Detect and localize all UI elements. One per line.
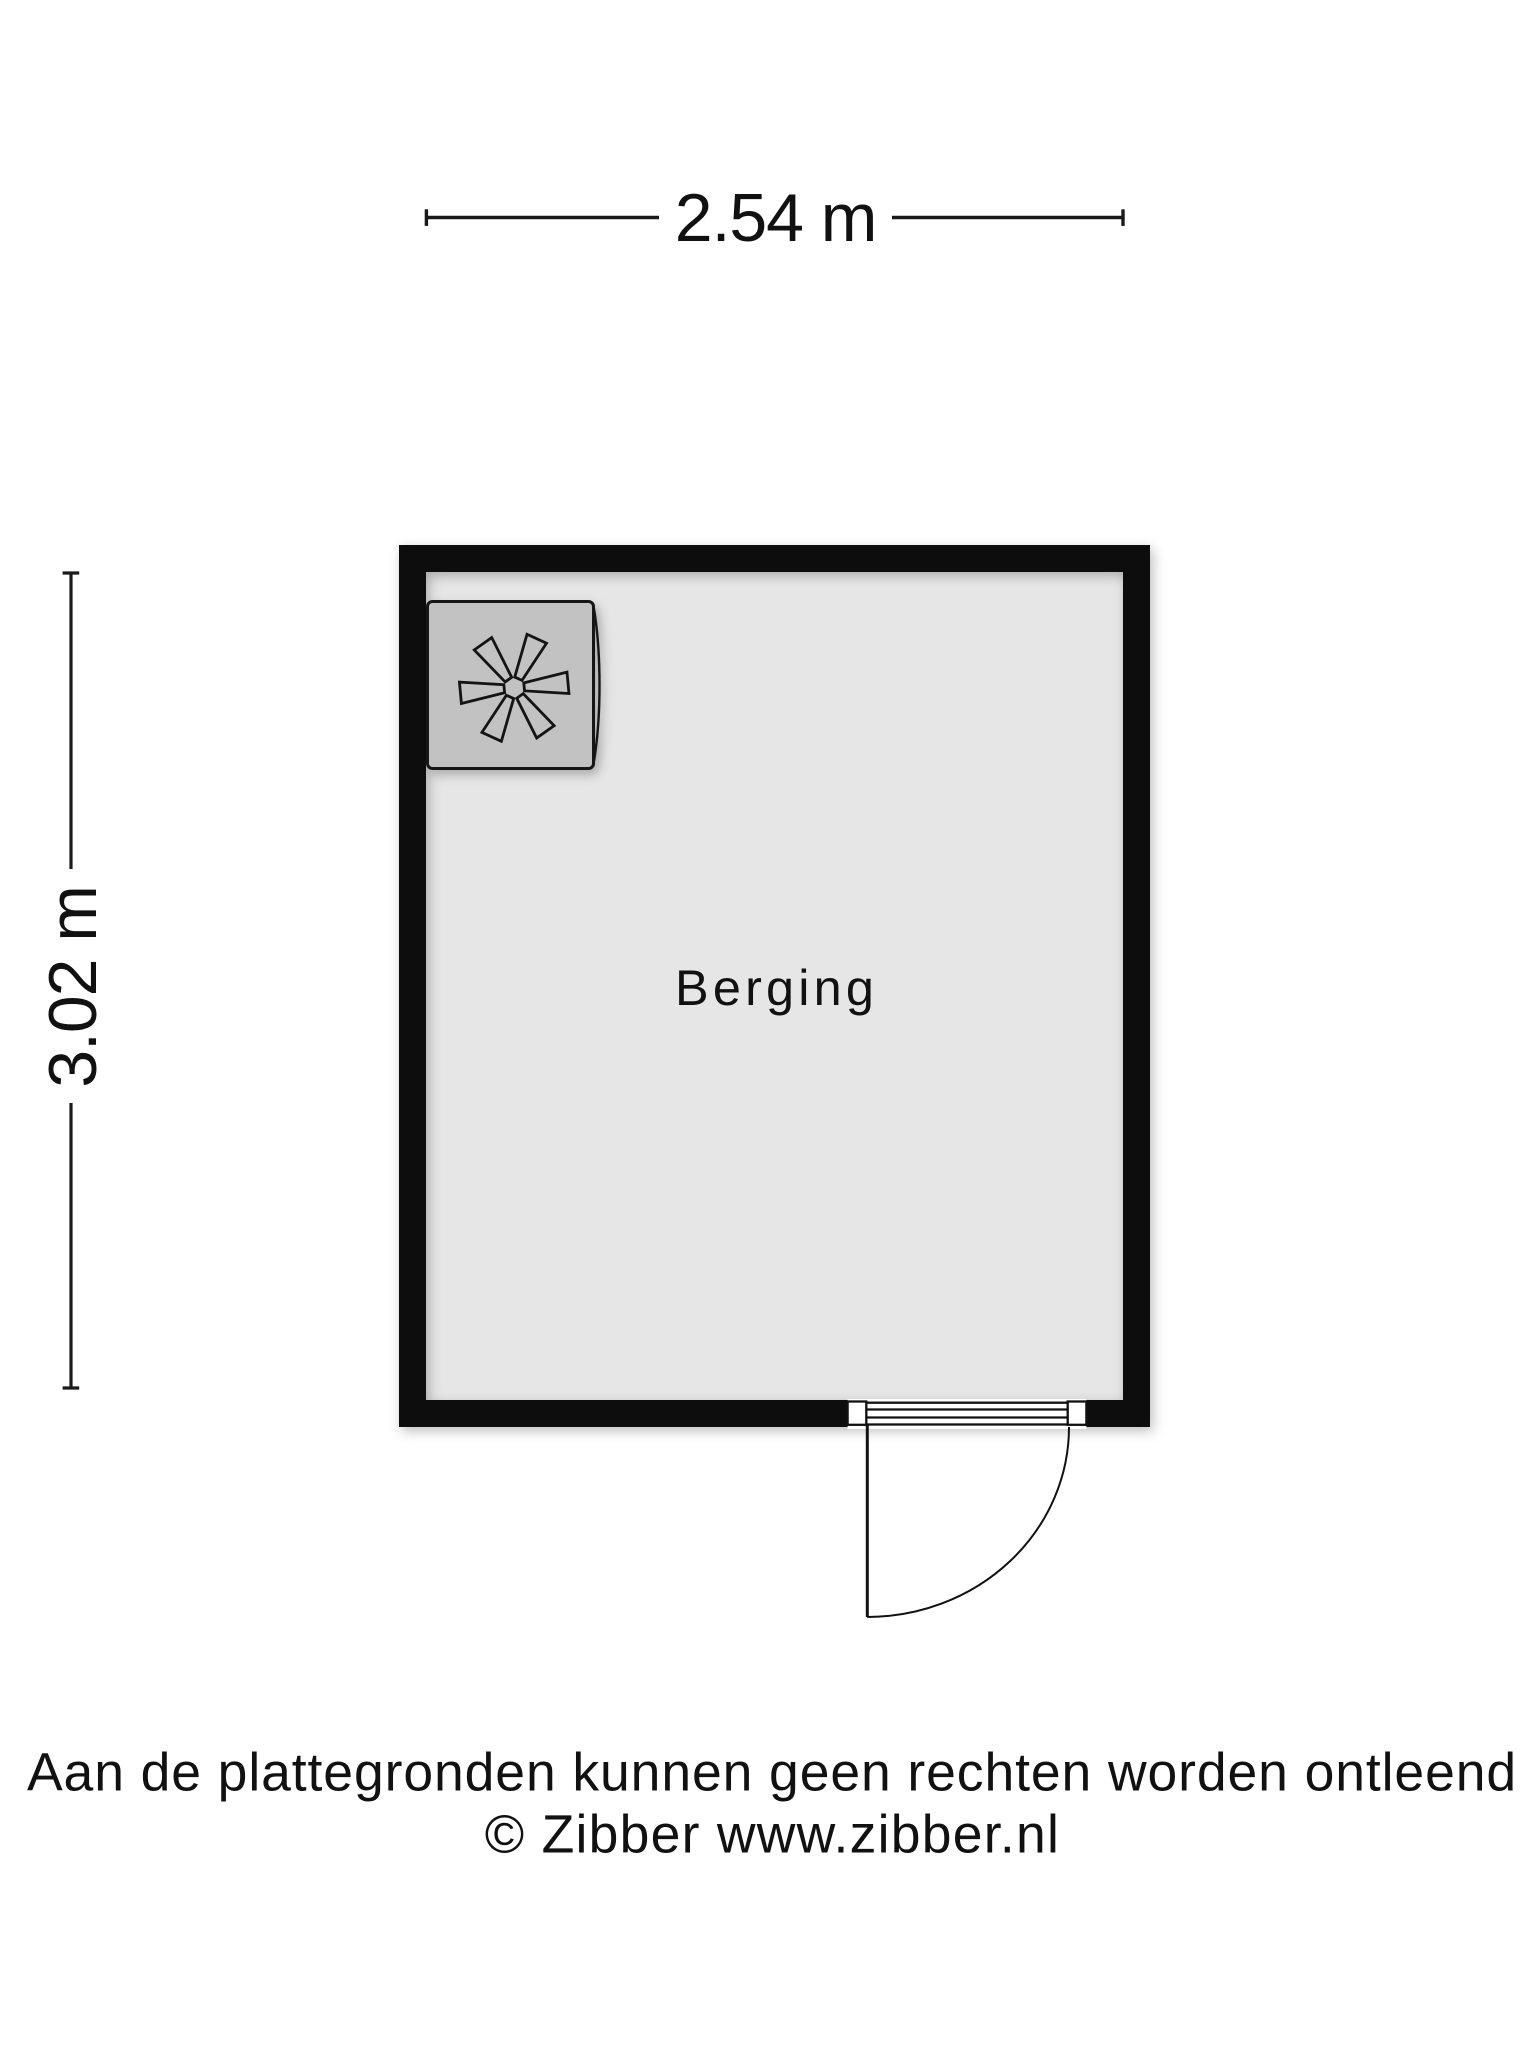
svg-text:2.54 m: 2.54 m bbox=[675, 180, 877, 256]
svg-text:Aan de plattegronden kunnen ge: Aan de plattegronden kunnen geen rechten… bbox=[27, 1744, 1517, 1803]
svg-text:3.02 m: 3.02 m bbox=[35, 886, 111, 1088]
svg-text:© Zibber www.zibber.nl: © Zibber www.zibber.nl bbox=[485, 1805, 1060, 1864]
svg-text:Berging: Berging bbox=[675, 959, 878, 1016]
